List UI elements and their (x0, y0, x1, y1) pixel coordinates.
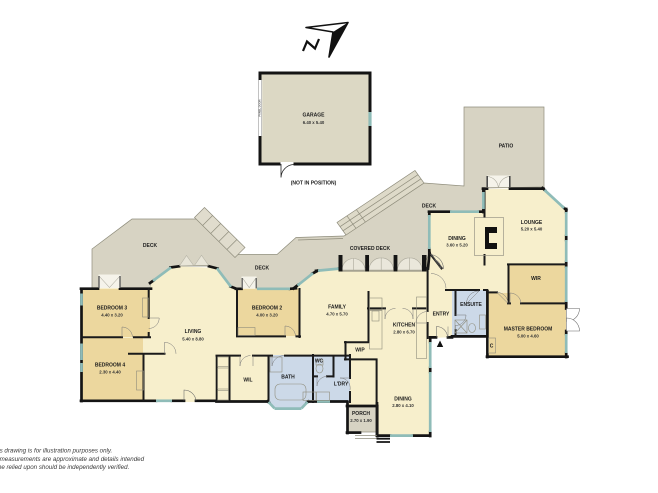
svg-text:5.40 x 8.80: 5.40 x 8.80 (182, 337, 204, 342)
svg-text:2.80 x 6.70: 2.80 x 6.70 (393, 330, 415, 335)
svg-text:5.00 x 4.60: 5.00 x 4.60 (517, 334, 539, 339)
svg-text:4.00 x 3.20: 4.00 x 3.20 (256, 313, 278, 318)
svg-text:WIR: WIR (531, 276, 541, 282)
svg-text:4.40 x 3.20: 4.40 x 3.20 (101, 313, 123, 318)
svg-text:L'DRY: L'DRY (334, 382, 349, 388)
svg-text:2.80 x 4.10: 2.80 x 4.10 (392, 403, 414, 408)
svg-text:FAMILY: FAMILY (328, 305, 347, 311)
svg-text:WIP: WIP (355, 347, 365, 353)
svg-text:(NOT IN POSITION): (NOT IN POSITION) (291, 180, 337, 186)
svg-text:2.70 x 1.90: 2.70 x 1.90 (350, 418, 372, 423)
svg-text:DINING: DINING (448, 236, 466, 242)
svg-text:LIVING: LIVING (185, 329, 202, 335)
svg-text:4.70 x 5.70: 4.70 x 5.70 (326, 312, 348, 317)
svg-text:KITCHEN: KITCHEN (393, 323, 416, 329)
svg-text:WC: WC (315, 359, 324, 365)
svg-text:2.30 x 4.40: 2.30 x 4.40 (99, 370, 121, 375)
svg-text:WIL: WIL (243, 378, 252, 384)
svg-text:to be relied upon should be in: to be relied upon should be independentl… (0, 464, 129, 471)
svg-text:3.60 x 5.20: 3.60 x 5.20 (446, 243, 468, 248)
svg-text:C: C (490, 344, 494, 350)
svg-text:LOUNGE: LOUNGE (521, 220, 543, 226)
svg-text:DECK: DECK (143, 243, 158, 249)
svg-text:6.40 x 5.40: 6.40 x 5.40 (303, 120, 325, 125)
svg-text:BEDROOM 4: BEDROOM 4 (95, 363, 126, 369)
svg-text:PANEL DOOR: PANEL DOOR (257, 99, 261, 116)
svg-text:DECK: DECK (422, 203, 437, 209)
svg-text:BEDROOM 3: BEDROOM 3 (97, 306, 128, 312)
svg-text:ENTRY: ENTRY (433, 312, 450, 318)
svg-text:GARAGE: GARAGE (303, 113, 326, 119)
svg-text:All measurements are approxima: All measurements are approximate and det… (0, 456, 145, 463)
svg-text:BEDROOM 2: BEDROOM 2 (252, 306, 283, 312)
svg-text:COVERED DECK: COVERED DECK (350, 246, 391, 252)
svg-text:DECK: DECK (255, 266, 270, 272)
svg-text:DINING: DINING (394, 397, 412, 403)
svg-text:PORCH: PORCH (352, 411, 370, 417)
svg-text:PATIO: PATIO (499, 144, 514, 150)
svg-text:BATH: BATH (281, 375, 295, 381)
svg-text:ENSUITE: ENSUITE (460, 302, 482, 308)
svg-text:MASTER BEDROOM: MASTER BEDROOM (504, 327, 553, 333)
svg-text:5.20 x 5.40: 5.20 x 5.40 (521, 227, 543, 232)
svg-text:This drawing is for illustrati: This drawing is for illustration purpose… (0, 448, 112, 455)
